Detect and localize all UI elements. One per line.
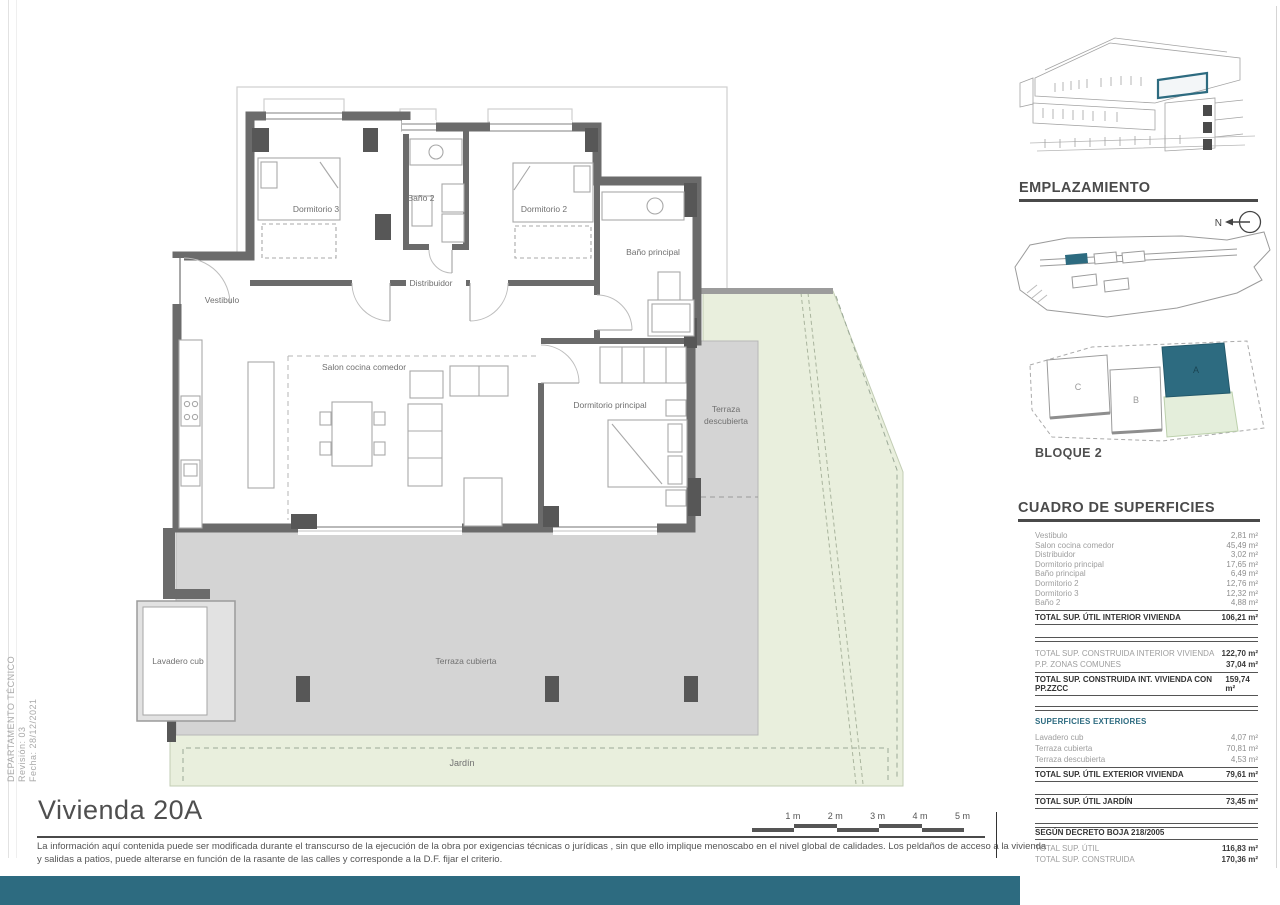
table-row: Terraza cubierta70,81 m² [1035,743,1258,754]
axonometric-sketch [1015,8,1270,173]
total-label: TOTAL SUP. ÚTIL INTERIOR VIVIENDA [1035,613,1181,622]
total-value: 79,61 m² [1226,770,1258,779]
table-row: Baño principal6,49 m² [1035,569,1258,579]
scale-label: 4 m [885,811,927,821]
right-frame-line [1276,6,1277,868]
table-row: TOTAL SUP. CONSTRUIDA170,36 m² [1035,854,1258,865]
table-row: P.P. ZONAS COMUNES37,04 m² [1035,659,1258,670]
row-value: 4,53 m² [1231,754,1258,765]
row-value: 122,70 m² [1222,648,1258,659]
row-value: 45,49 m² [1226,541,1258,551]
room-label-jardin: Jardín [449,758,474,768]
disclaimer-line-2: y salidas a patios, puede alterarse en f… [37,854,987,865]
highlighted-site-building [1065,253,1088,265]
footer-accent-bar [0,876,1020,905]
construida-total-row: TOTAL SUP. CONSTRUIDA INT. VIVIENDA CON … [1035,672,1258,696]
scale-label: 2 m [800,811,842,821]
scale-label: 3 m [843,811,885,821]
section-divider [1035,706,1258,711]
row-label: Dormitorio principal [1035,560,1104,570]
room-label-terraza-descubierta-2: descubierta [704,416,748,426]
room-label-salon: Salon cocina comedor [322,362,406,372]
footer-rule [37,836,985,838]
department-side-text: DEPARTAMENTO TÉCNICO Revisión: 03 Fecha:… [6,632,39,782]
row-label: Distribuidor [1035,550,1075,560]
site-plan: N [1012,205,1274,335]
room-label-distribuidor: Distribuidor [410,278,453,288]
exteriores-title: SUPERFICIES EXTERIORES [1035,717,1258,726]
row-value: 2,81 m² [1231,531,1258,541]
room-label-bano2: Baño 2 [408,193,435,203]
row-label: TOTAL SUP. CONSTRUIDA [1035,854,1135,865]
table-row: Terraza descubierta4,53 m² [1035,754,1258,765]
plan-sheet: Dormitorio 3 Baño 2 Dormitorio 2 Baño pr… [0,0,1280,905]
room-label-dormitorio3: Dormitorio 3 [293,204,340,214]
table-row: Baño 24,88 m² [1035,598,1258,608]
row-label: Vestibulo [1035,531,1067,541]
table-row: Lavadero cub4,07 m² [1035,732,1258,743]
interior-total-row: TOTAL SUP. ÚTIL INTERIOR VIVIENDA106,21 … [1035,610,1258,625]
row-value: 116,83 m² [1222,843,1258,854]
side-text-line: DEPARTAMENTO TÉCNICO [6,632,17,782]
side-text-line: Revisión: 03 [17,632,28,782]
table-row: Salon cocina comedor45,49 m² [1035,541,1258,551]
row-value: 4,07 m² [1231,732,1258,743]
row-value: 70,81 m² [1226,743,1258,754]
row-label: Lavadero cub [1035,732,1083,743]
row-label: TOTAL SUP. CONSTRUIDA INTERIOR VIVIENDA [1035,648,1214,659]
scale-label: 1 m [758,811,800,821]
total-label: TOTAL SUP. ÚTIL JARDÍN [1035,797,1133,806]
row-label: Salon cocina comedor [1035,541,1114,551]
row-label: Dormitorio 2 [1035,579,1079,589]
block-letter-c: C [1075,382,1082,392]
surfaces-table: CUADRO DE SUPERFICIES Vestibulo2,81 m² S… [1018,500,1260,865]
page-title: Vivienda 20A [38,795,203,826]
block-letter-a: A [1193,365,1199,375]
total-value: 106,21 m² [1222,613,1258,622]
total-value: 159,74 m² [1225,675,1258,693]
room-label-vestibulo: Vestibulo [205,295,240,305]
floor-plan: Dormitorio 3 Baño 2 Dormitorio 2 Baño pr… [0,0,1010,875]
north-label: N [1215,218,1222,229]
table-row: Dormitorio 312,32 m² [1035,589,1258,599]
table-row: Dormitorio principal17,65 m² [1035,560,1258,570]
jardin-total-row: TOTAL SUP. ÚTIL JARDÍN73,45 m² [1035,794,1258,809]
scale-labels: 1 m 2 m 3 m 4 m 5 m [752,811,964,821]
row-value: 6,49 m² [1231,569,1258,579]
table-row: TOTAL SUP. ÚTIL116,83 m² [1035,843,1258,854]
row-value: 170,36 m² [1222,854,1258,865]
row-value: 4,88 m² [1231,598,1258,608]
block-letter-b: B [1133,395,1139,405]
scale-label: 5 m [928,811,970,821]
room-label-dormitorio2: Dormitorio 2 [521,204,568,214]
row-value: 17,65 m² [1226,560,1258,570]
footer-divider-line [996,812,997,858]
table-row: Dormitorio 212,76 m² [1035,579,1258,589]
decreto-title: SEGÚN DECRETO BOJA 218/2005 [1035,828,1258,840]
row-label: Baño 2 [1035,598,1060,608]
north-arrow: N [1215,212,1261,233]
dark-windows [1203,105,1212,150]
row-label: Terraza descubierta [1035,754,1105,765]
room-label-dormitorio-principal: Dormitorio principal [573,400,646,410]
total-value: 73,45 m² [1226,797,1258,806]
row-label: P.P. ZONAS COMUNES [1035,659,1121,670]
scale-bar: 1 m 2 m 3 m 4 m 5 m [752,811,964,833]
block-plan: C B A [1012,335,1274,445]
row-label: Baño principal [1035,569,1086,579]
row-value: 12,32 m² [1226,589,1258,599]
row-label: Terraza cubierta [1035,743,1092,754]
side-text-line: Fecha: 28/12/2021 [28,632,39,782]
room-label-terraza-cubierta: Terraza cubierta [436,656,497,666]
row-value: 37,04 m² [1226,659,1258,670]
row-value: 3,02 m² [1231,550,1258,560]
highlighted-unit-box [1158,73,1207,98]
room-label-bano-principal: Baño principal [626,247,680,257]
row-label: Dormitorio 3 [1035,589,1079,599]
bloque-label: BLOQUE 2 [1035,446,1102,460]
section-divider [1035,637,1258,642]
room-label-terraza-descubierta-1: Terraza [712,404,741,414]
disclaimer-line-1: La información aquí contenida puede ser … [37,841,987,852]
scale-segments [752,823,964,833]
emplazamiento-heading: EMPLAZAMIENTO [1019,180,1258,202]
exterior-total-row: TOTAL SUP. ÚTIL EXTERIOR VIVIENDA79,61 m… [1035,767,1258,782]
total-label: TOTAL SUP. ÚTIL EXTERIOR VIVIENDA [1035,770,1184,779]
row-value: 12,76 m² [1226,579,1258,589]
total-label: TOTAL SUP. CONSTRUIDA INT. VIVIENDA CON … [1035,675,1225,693]
surfaces-table-title: CUADRO DE SUPERFICIES [1018,500,1260,522]
table-row: Distribuidor3,02 m² [1035,550,1258,560]
table-row: Vestibulo2,81 m² [1035,531,1258,541]
room-label-lavadero: Lavadero cub [152,656,204,666]
table-row: TOTAL SUP. CONSTRUIDA INTERIOR VIVIENDA1… [1035,648,1258,659]
